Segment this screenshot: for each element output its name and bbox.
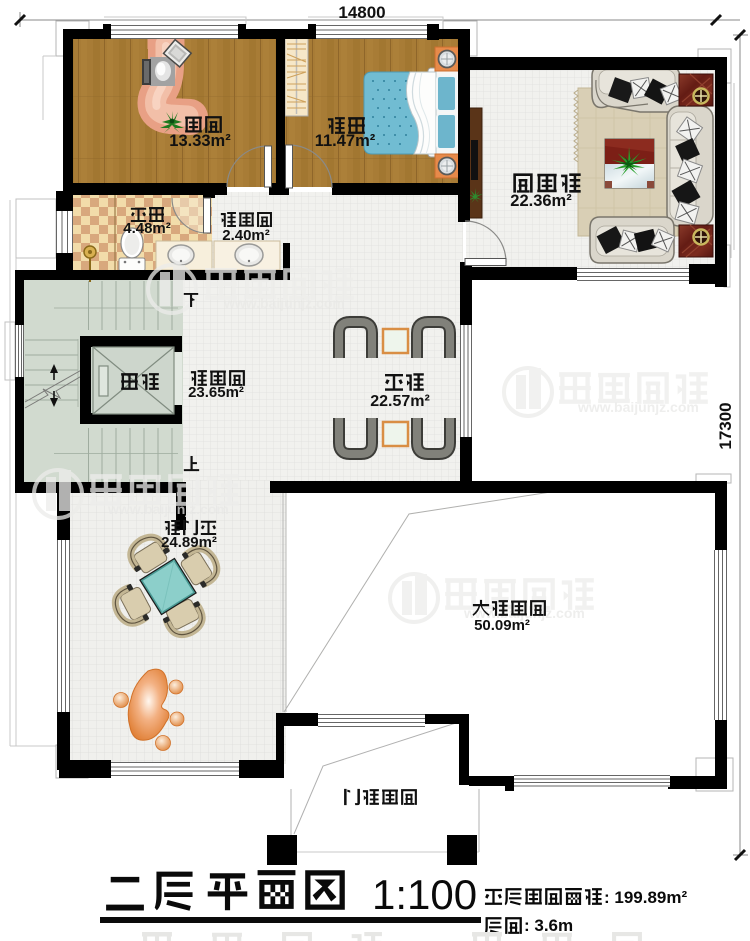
svg-text:11.47m²: 11.47m² bbox=[315, 132, 376, 150]
svg-text:www.baijunjz.com: www.baijunjz.com bbox=[107, 501, 229, 517]
svg-text:22.36m²: 22.36m² bbox=[510, 192, 572, 210]
svg-text:1:100: 1:100 bbox=[372, 871, 477, 918]
svg-text:17300: 17300 bbox=[716, 402, 735, 449]
svg-text:: 3.6m: : 3.6m bbox=[524, 916, 573, 935]
svg-text:www.baijunjz.com: www.baijunjz.com bbox=[223, 295, 345, 311]
svg-text:13.33m²: 13.33m² bbox=[169, 132, 231, 150]
svg-text:: 199.89m²: : 199.89m² bbox=[604, 888, 687, 907]
svg-text:14800: 14800 bbox=[338, 3, 385, 22]
svg-text:23.65m²: 23.65m² bbox=[188, 384, 244, 401]
svg-text:50.09m²: 50.09m² bbox=[474, 617, 530, 634]
svg-text:www.baijunjz.com: www.baijunjz.com bbox=[577, 399, 699, 415]
svg-text:4.48m²: 4.48m² bbox=[123, 220, 171, 237]
svg-text:2.40m²: 2.40m² bbox=[222, 227, 270, 244]
svg-text:22.57m²: 22.57m² bbox=[370, 393, 430, 410]
svg-text:24.89m²: 24.89m² bbox=[161, 534, 217, 551]
